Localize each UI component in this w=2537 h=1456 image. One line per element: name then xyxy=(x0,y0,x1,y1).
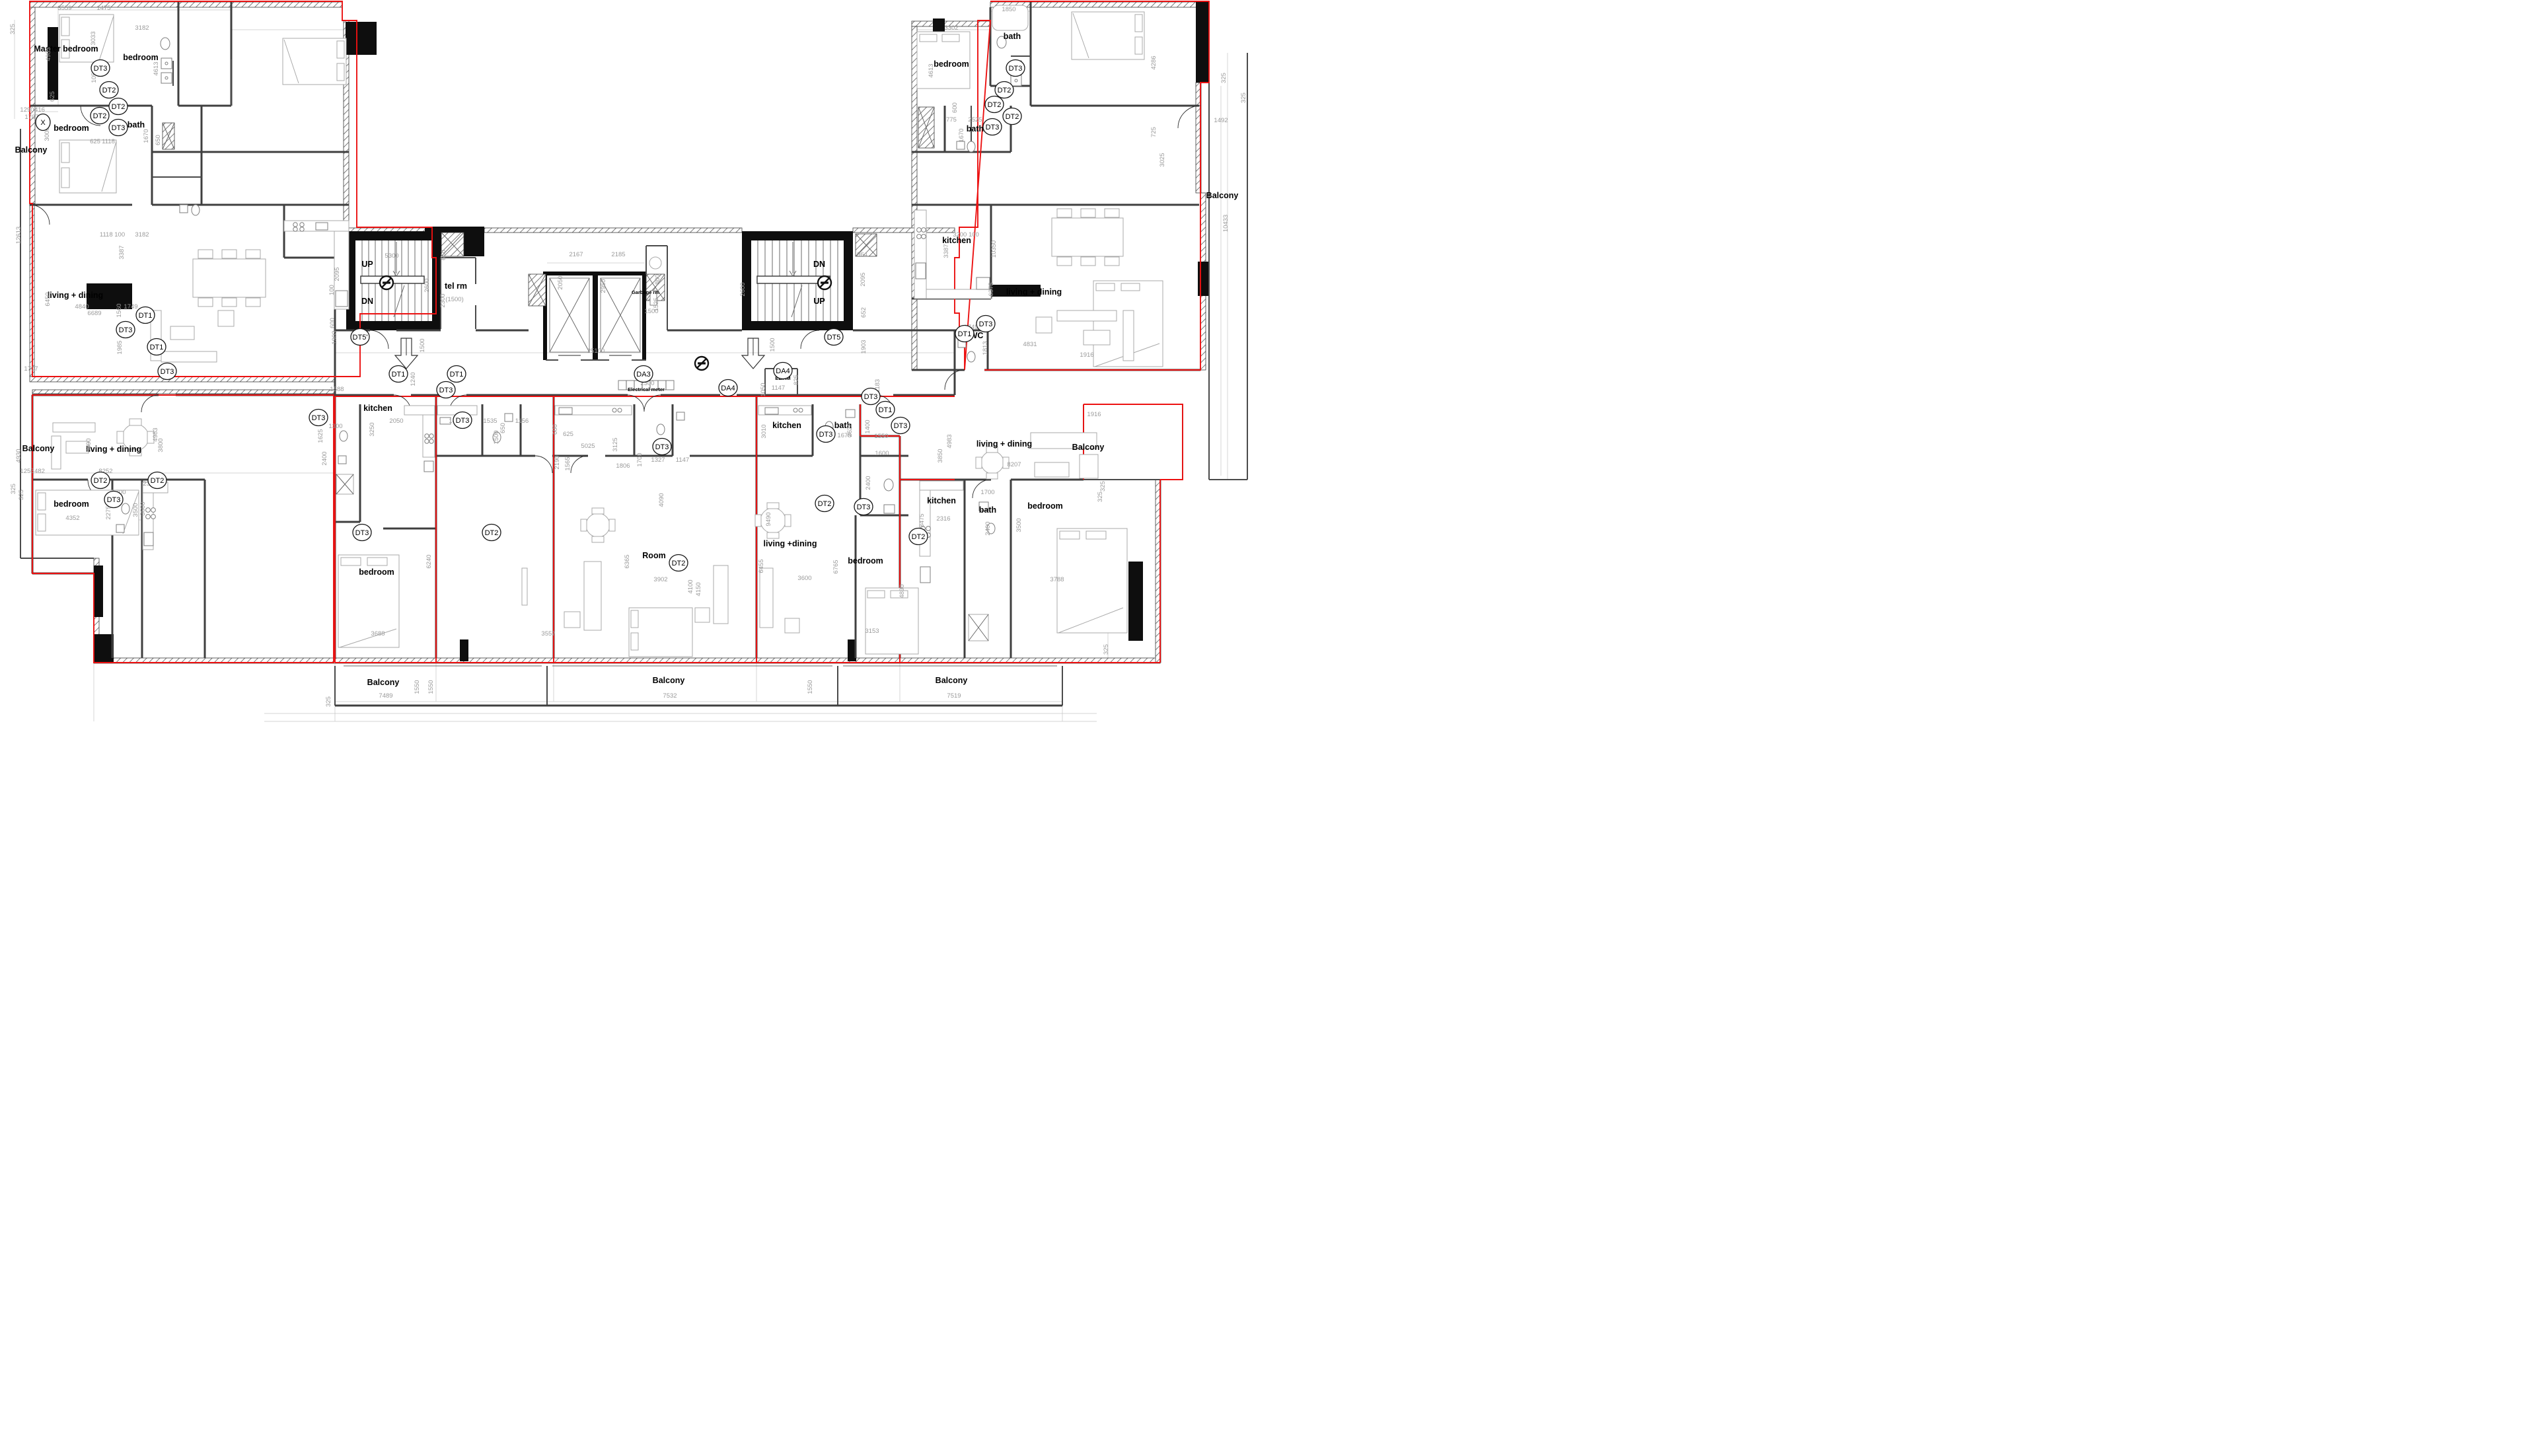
dimension-label: 600 xyxy=(951,102,959,113)
door-tag-dt5': DT5' xyxy=(351,329,369,346)
dimension-label: 4613 xyxy=(153,61,160,75)
dimension-label: 1550 xyxy=(807,680,814,694)
dimension-label: 625 xyxy=(90,138,100,145)
dimension-label: 3033 xyxy=(90,31,97,45)
svg-text:DA4: DA4 xyxy=(776,367,790,375)
dimension-label: 7532 xyxy=(663,692,677,700)
door-tag-dt3: DT3 xyxy=(104,491,123,508)
door-tag-dt2: DT2 xyxy=(91,108,109,124)
sofa xyxy=(1031,433,1098,478)
door-tag-dt1: DT1 xyxy=(876,402,895,418)
dimension-label: 1147 xyxy=(772,384,785,392)
dimension-label: 6365 xyxy=(624,554,631,568)
bed xyxy=(59,140,116,193)
sofa xyxy=(522,562,601,630)
bath-fixtures xyxy=(336,431,353,494)
floor-plan-canvas: Master bedroombedroombedroombathBalconyl… xyxy=(0,0,1268,728)
bath-fixtures xyxy=(161,38,172,83)
dimension-label: 3387 xyxy=(943,244,950,258)
dimension-label: 1560 xyxy=(116,303,123,317)
dimension-label: 6450 xyxy=(44,292,52,306)
dimension-label: 1707 xyxy=(24,365,38,373)
dimension-label: 625 xyxy=(563,431,573,438)
dimension-label: 1600 xyxy=(875,450,889,457)
door-tag-dt3: DT3 xyxy=(891,418,910,434)
dimension-label: 2400 xyxy=(321,451,328,465)
dimension-label: 3182 xyxy=(135,231,149,238)
dimension-label: 1625 xyxy=(317,429,324,443)
room-label: tel rm xyxy=(445,281,467,291)
svg-text:DT3: DT3 xyxy=(456,417,470,425)
dimension-label: 325 xyxy=(1099,481,1107,491)
door-tag-dt3: DT3 xyxy=(453,412,472,429)
dimension-label: 1500 xyxy=(644,308,658,315)
door-tag-dt2: DT2 xyxy=(109,98,128,115)
room-label: Balcony xyxy=(1206,191,1239,200)
dimension-label: 4840 xyxy=(75,303,89,310)
door-tags-layer: DT3DT2DT2DT2DT3XDT1DT3DT1DT3DT5'DT5DT1DT… xyxy=(36,60,1025,571)
svg-text:DT5': DT5' xyxy=(353,334,368,342)
dimension-label: 652 xyxy=(860,307,867,318)
svg-text:DT2: DT2 xyxy=(988,101,1002,109)
room-label: bedroom xyxy=(848,556,883,565)
dimension-label: 12613 xyxy=(15,227,22,244)
dimension-label: 3500 xyxy=(132,503,139,517)
dining-table xyxy=(1052,209,1123,266)
door-tag-dt3: DT3 xyxy=(116,322,135,338)
sofa xyxy=(760,568,799,633)
dimension-label: 4983 xyxy=(45,47,52,61)
bed xyxy=(283,38,346,85)
svg-text:DT3: DT3 xyxy=(439,386,453,394)
dimension-label: 3250 xyxy=(369,422,376,436)
dimension-label: 4286 xyxy=(1150,55,1158,69)
dimension-label: 3302 xyxy=(944,24,958,32)
svg-text:DT3: DT3 xyxy=(819,431,833,439)
dimension-label: 1813 xyxy=(982,341,989,355)
svg-text:DT2: DT2 xyxy=(998,87,1011,94)
dimension-label: 3010 xyxy=(760,424,768,438)
door-tag-dt3: DT3 xyxy=(862,388,880,405)
small-label: Electrical meter xyxy=(628,386,665,392)
door-tag-dt3: DT3 xyxy=(353,525,371,541)
room-label: Balcony xyxy=(367,678,400,687)
dining-table xyxy=(976,447,1009,479)
room-label: DN xyxy=(361,297,373,306)
dining-table xyxy=(193,250,266,307)
dimension-label: 1903 xyxy=(860,340,867,353)
dimension-label: 3559 xyxy=(57,5,71,12)
svg-text:DT2: DT2 xyxy=(672,560,686,567)
dimension-label: 5025 xyxy=(581,443,595,450)
svg-text:DT2: DT2 xyxy=(102,87,116,94)
dimension-label: 6455 xyxy=(758,559,765,573)
room-label: bedroom xyxy=(934,59,969,69)
room-label: Balcony xyxy=(22,444,55,453)
dimension-label: 3475 xyxy=(918,513,926,527)
no-smoking-icon xyxy=(818,276,831,289)
dimension-label: 2316 xyxy=(936,515,950,523)
door-tag-dt3: DT3 xyxy=(983,119,1002,135)
dimension-label: 2950 xyxy=(600,279,607,293)
dimension-label: 3850 xyxy=(937,449,944,462)
svg-text:DT3: DT3 xyxy=(986,124,1000,131)
dimension-label: 1985 xyxy=(116,340,124,354)
room-label: Balcony xyxy=(936,676,968,685)
room-label: kitchen xyxy=(363,404,392,413)
dimension-label: 1550 xyxy=(427,680,435,694)
dimension-label: 2185 xyxy=(611,251,625,258)
svg-text:DT1: DT1 xyxy=(150,344,164,351)
dimension-label: 5300 xyxy=(385,252,398,260)
svg-text:DT3: DT3 xyxy=(161,368,174,376)
dimension-label: 3500 xyxy=(1015,518,1023,532)
entry-arrow-icon xyxy=(742,338,764,369)
room-label: living + dining xyxy=(48,291,103,300)
entry-arrow-icon xyxy=(395,338,418,369)
dimension-label: 3600 xyxy=(139,501,147,515)
room-label: kitchen xyxy=(772,421,801,430)
svg-text:DT3: DT3 xyxy=(112,124,126,132)
dimension-label: 3800 xyxy=(85,438,92,452)
room-label: bedroom xyxy=(359,567,394,577)
dimension-label: 416 xyxy=(34,106,45,114)
dimension-label: 1240 xyxy=(410,372,417,386)
dimension-label: 10350 xyxy=(990,240,998,258)
no-smoking-icon xyxy=(695,357,708,370)
dimension-label: 1850 xyxy=(1002,6,1015,13)
kitchen-counter xyxy=(404,406,435,472)
dimension-label: 2400 xyxy=(865,476,872,490)
dimension-label: 1290 xyxy=(20,106,34,114)
dimension-label: 325 xyxy=(18,490,25,500)
dimension-label: 6375 xyxy=(988,282,995,296)
svg-text:DT1: DT1 xyxy=(879,406,893,414)
dimension-label: 964 xyxy=(857,251,867,258)
door-tag-dt3: DT3 xyxy=(976,316,995,332)
dimension-label: 482 xyxy=(34,468,45,475)
svg-text:DT3: DT3 xyxy=(94,65,108,73)
bath-fixtures xyxy=(180,205,200,215)
dimension-label: 2050 xyxy=(389,418,403,425)
room-label: bedroom xyxy=(123,53,158,62)
right-stair-core xyxy=(742,231,853,330)
room-label: kitchen xyxy=(927,496,956,505)
kitchen-counter xyxy=(914,210,991,299)
dimension-label: 1550 xyxy=(414,680,421,694)
dining-table xyxy=(755,503,791,538)
svg-text:DT3: DT3 xyxy=(355,529,369,537)
dimension-label: 4983 xyxy=(946,434,953,448)
svg-text:DT1: DT1 xyxy=(139,312,153,320)
dimension-label: 3688 xyxy=(371,630,385,637)
dimension-label: 1118 100 xyxy=(100,231,125,238)
dimension-label: 1749 xyxy=(124,303,137,310)
door-tag-dt1: DT1 xyxy=(389,366,408,382)
dimension-label: 1327 xyxy=(651,456,665,464)
dimension-label: 1500 xyxy=(769,338,776,351)
dimension-label: 6689 xyxy=(87,310,101,317)
door-tag-dt3: DT3 xyxy=(158,363,176,380)
dimension-label: 1700 xyxy=(636,453,643,466)
svg-text:DA3: DA3 xyxy=(636,371,650,379)
bed xyxy=(865,588,918,654)
dimension-label: 325 xyxy=(325,696,332,707)
dimension-label: 3557 xyxy=(541,630,555,637)
dimension-label: 3788 xyxy=(1050,576,1064,583)
door-tag-dt3: DT3 xyxy=(109,120,128,136)
dimension-label: 1492 xyxy=(1214,117,1228,124)
dimension-label: 1565 xyxy=(564,456,571,470)
dimension-label: 2167 xyxy=(569,251,583,258)
dimension-label: 1670 xyxy=(958,128,965,142)
dimension-label: 4613 xyxy=(928,63,935,77)
svg-text:DT2: DT2 xyxy=(818,500,832,508)
door-tag-dt3: DT3 xyxy=(309,410,328,426)
svg-text:DT3: DT3 xyxy=(864,393,878,401)
door-tag-dt2: DT2 xyxy=(482,525,501,541)
dimension-label: 1118 xyxy=(102,138,115,145)
dimension-label: 325 xyxy=(9,24,17,34)
door-tag-dt2: DT2 xyxy=(100,82,118,98)
room-label: UP xyxy=(361,260,373,269)
dimension-label: 1550 xyxy=(874,433,888,440)
dimension-label: 1700 xyxy=(980,489,994,496)
door-tag-dt1: DT1 xyxy=(147,339,166,355)
door-tag-da3: DA3 xyxy=(634,366,653,382)
dimension-label: 1588 xyxy=(330,386,344,393)
kitchen-counter xyxy=(284,221,349,309)
svg-text:DT3: DT3 xyxy=(107,496,121,504)
door-tag-dt3: DT3 xyxy=(437,382,455,398)
door-tag-da4: DA4 xyxy=(774,363,792,379)
room-label: bedroom xyxy=(54,124,89,133)
dimension-label: 1156 xyxy=(515,418,529,425)
dimension-label: 325 xyxy=(1103,644,1110,655)
room-label: living + dining xyxy=(86,445,141,454)
door-tag-dt2: DT2 xyxy=(669,555,688,571)
door-tag-dt2: DT2 xyxy=(1003,108,1021,125)
bed xyxy=(59,15,114,62)
dimension-label: 1500 xyxy=(493,430,500,444)
dimension-label: 1916 xyxy=(1080,351,1093,359)
dimension-label: 3387 xyxy=(118,245,126,259)
dimension-label: 4831 xyxy=(1023,341,1037,348)
door-tag-dt3: DT3 xyxy=(817,426,835,443)
dimension-label: 650 xyxy=(499,423,507,433)
room-label: bedroom xyxy=(54,499,89,509)
dimension-label: 1255 xyxy=(20,468,34,475)
svg-text:DT2: DT2 xyxy=(1006,113,1019,121)
svg-text:DT1: DT1 xyxy=(450,371,464,379)
door-tag-dt1: DT1 xyxy=(955,326,974,342)
door-tag-dt5: DT5 xyxy=(825,329,843,346)
dimension-label: 25100 xyxy=(587,347,605,355)
dimension-label: 325 xyxy=(1097,491,1104,502)
door-tag-dt3: DT3 xyxy=(854,499,873,515)
dimension-label: 625 xyxy=(49,91,56,102)
kitchen-counter xyxy=(758,406,811,415)
svg-text:DT3: DT3 xyxy=(979,320,993,328)
door-tag-dt2: DT2 xyxy=(985,96,1004,113)
svg-text:DT3: DT3 xyxy=(894,422,908,430)
door-tag-dt2: DT2 xyxy=(91,472,110,489)
dimension-label: 4150 xyxy=(695,582,702,596)
dimension-label: 800 xyxy=(654,274,661,285)
dimension-label: 4890 xyxy=(899,584,906,598)
dimension-label: 2525 xyxy=(968,116,982,124)
svg-text:DT1: DT1 xyxy=(392,371,406,379)
room-label: living + dining xyxy=(976,439,1032,449)
room-label: UP xyxy=(813,297,825,306)
dimension-label: 8207 xyxy=(1007,461,1021,468)
door-tag-da4: DA4 xyxy=(719,380,737,396)
svg-text:DT3: DT3 xyxy=(857,503,871,511)
dimension-label: 2600 xyxy=(423,278,431,292)
svg-text:DT5: DT5 xyxy=(827,334,841,342)
dimension-label: 4930 xyxy=(15,449,22,462)
svg-text:DT1: DT1 xyxy=(958,330,972,338)
svg-text:DT3: DT3 xyxy=(1009,65,1023,73)
bath-fixtures xyxy=(657,412,684,435)
dimension-label: 4100 xyxy=(687,579,694,593)
dimension-label: 600 xyxy=(552,424,559,435)
room-label: living + dining xyxy=(1006,287,1062,297)
dimension-label: 6240 xyxy=(425,554,433,568)
bed xyxy=(629,608,692,657)
door-tag-dt2: DT2 xyxy=(815,495,834,512)
small-label: Garbage rm xyxy=(632,289,659,295)
dimension-label: 600 xyxy=(329,318,336,328)
room-label: Balcony xyxy=(1072,443,1105,452)
dimension-label: 1300 xyxy=(328,423,342,430)
dimension-label: 1535 xyxy=(483,418,497,425)
dimension-label: 3600 xyxy=(797,575,811,582)
svg-text:DA4: DA4 xyxy=(721,384,735,392)
room-label: Balcony xyxy=(15,145,48,155)
dimension-label: 3125 xyxy=(612,437,619,451)
dimension-label: 3153 xyxy=(865,628,879,635)
dimension-label: 7519 xyxy=(947,692,961,700)
dimension-label: (1500) xyxy=(445,296,463,303)
room-label: bath xyxy=(967,124,984,133)
door-tag-dt1: DT1 xyxy=(447,366,466,382)
door-tag-dt3: DT3 xyxy=(91,60,110,77)
floor-plan-drawing: Master bedroombedroombedroombathBalconyl… xyxy=(0,0,1268,728)
no-smoking-icon xyxy=(380,276,393,289)
svg-text:DT2: DT2 xyxy=(112,103,126,111)
bed xyxy=(1057,528,1127,633)
dining-table xyxy=(581,508,615,542)
bed xyxy=(1072,12,1144,59)
svg-text:DT2: DT2 xyxy=(93,112,107,120)
dimension-label: 2625 xyxy=(846,423,854,437)
svg-text:DT2: DT2 xyxy=(94,477,108,485)
dimension-label: 325 xyxy=(1240,92,1247,103)
dimension-label: 2600 xyxy=(739,282,747,296)
kitchen-counter xyxy=(555,406,632,415)
bath-fixtures xyxy=(884,479,895,513)
door-tag-dt1: DT1 xyxy=(136,307,155,324)
door-tag-dt2: DT2 xyxy=(909,528,928,545)
dimension-label: 775 xyxy=(946,116,957,124)
dimension-label: 1670 xyxy=(143,129,150,143)
dimension-label: 1147 xyxy=(676,456,689,464)
room-label: bath xyxy=(128,120,145,129)
dimension-label: 7489 xyxy=(379,692,392,700)
dimension-label: 650 xyxy=(155,135,162,145)
dimension-label: 2400 xyxy=(984,521,992,535)
svg-text:DT3: DT3 xyxy=(119,326,133,334)
dimension-label: 1500 xyxy=(419,338,426,352)
dimension-label: 2190 xyxy=(554,455,561,469)
dimension-label: 6765 xyxy=(832,560,840,573)
dimension-label: 3182 xyxy=(135,24,149,32)
dimension-label: 10433 xyxy=(1222,215,1230,232)
room-label: bath xyxy=(1004,32,1021,41)
sofa xyxy=(151,310,234,362)
dimension-label: 650 xyxy=(440,250,447,260)
dimension-label: 1050 xyxy=(760,382,767,396)
dimension-label: 1916 xyxy=(1087,411,1101,418)
svg-text:DT3: DT3 xyxy=(655,443,669,451)
door-tag-x: X xyxy=(36,114,50,131)
dimension-label: 2095 xyxy=(334,267,341,281)
dimension-label: 3902 xyxy=(653,576,667,583)
svg-text:DT2: DT2 xyxy=(485,529,499,537)
dimension-label: 1903 xyxy=(331,330,338,344)
dimension-label: 325 xyxy=(1220,73,1228,83)
room-label: bath xyxy=(979,505,996,515)
door-tag-dt2: DT2 xyxy=(148,472,166,489)
room-label: living +dining xyxy=(764,539,817,548)
svg-text:DT2: DT2 xyxy=(912,533,926,541)
room-label: DN xyxy=(813,260,825,269)
dimension-label: 2095 xyxy=(860,272,867,286)
dimension-label: 325 xyxy=(10,484,17,494)
dimension-label: 1806 xyxy=(616,462,630,470)
door-tag-dt2: DT2 xyxy=(995,82,1013,98)
door-tag-dt3: DT3 xyxy=(1006,60,1025,77)
door-tag-dt3: DT3 xyxy=(653,439,671,455)
room-label: Master bedroom xyxy=(34,44,98,54)
dimension-label: 9490 xyxy=(765,512,772,526)
room-label: Room xyxy=(642,551,665,560)
svg-text:DT2: DT2 xyxy=(151,477,165,485)
room-label: Balcony xyxy=(653,676,685,685)
dimension-label: 4352 xyxy=(65,515,79,522)
svg-text:X: X xyxy=(40,119,46,127)
room-label: bedroom xyxy=(1027,501,1062,511)
dimension-label: 3800 xyxy=(157,438,165,452)
dimension-label: 1475 xyxy=(96,5,110,12)
dimension-label: 4090 xyxy=(658,493,665,507)
dimension-label: 3200 100 xyxy=(953,231,979,238)
dimension-label: 1400 xyxy=(864,419,871,433)
dimension-label: 725 xyxy=(1150,127,1158,137)
dimension-label: 100 xyxy=(328,285,336,295)
dimension-label: 3025 xyxy=(1159,153,1166,166)
svg-text:DT3: DT3 xyxy=(312,414,326,422)
dimension-label: 825 xyxy=(793,375,800,385)
dimension-label: 2050 xyxy=(557,275,564,289)
